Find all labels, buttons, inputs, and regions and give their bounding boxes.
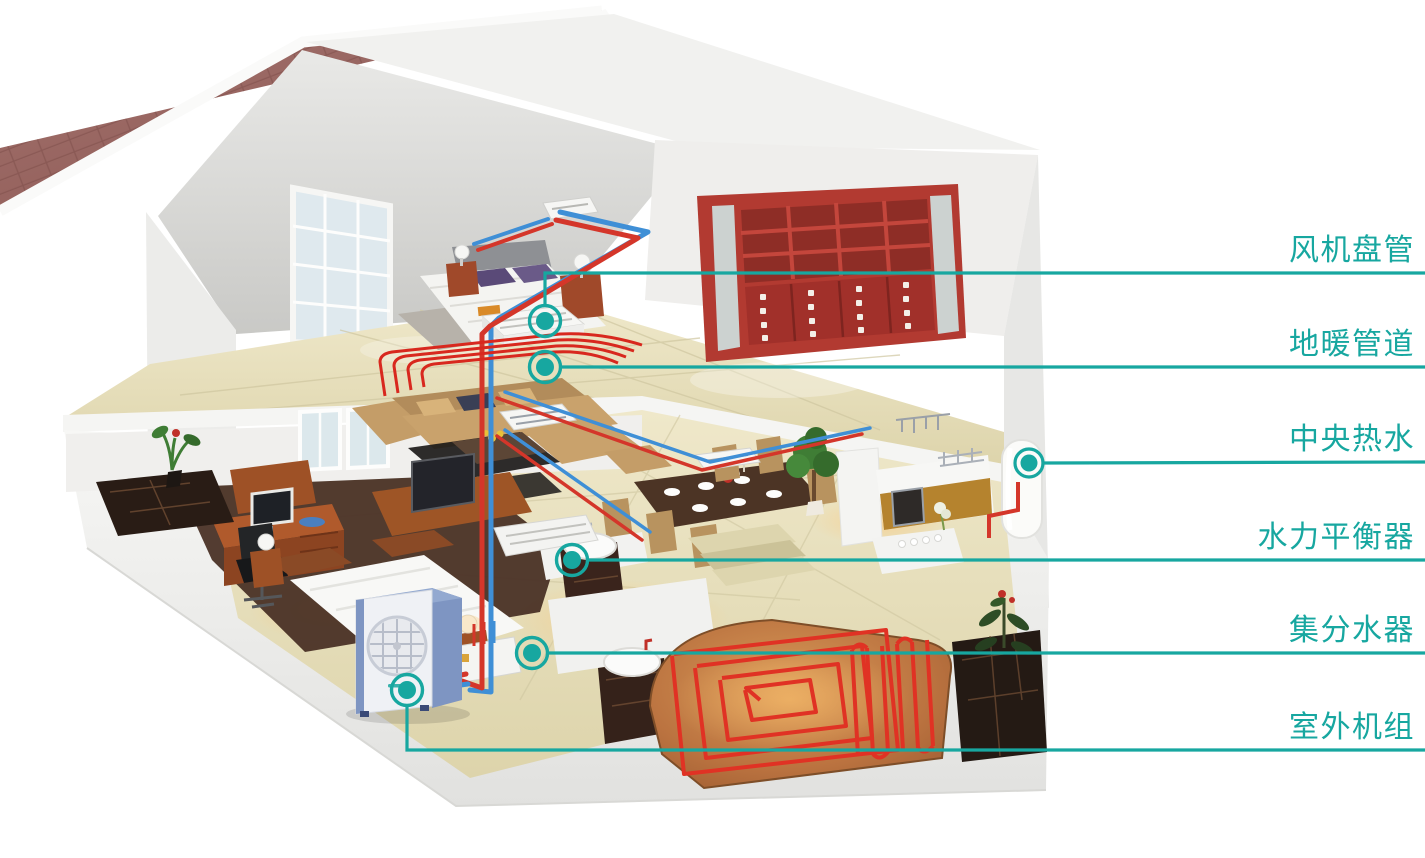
callout-label-fan-coil: 风机盘管 [1015, 234, 1415, 268]
callout-label-hydraulic-balancer: 水力平衡器 [1015, 521, 1415, 555]
callout-label-floor-heating: 地暖管道 [1015, 328, 1415, 362]
callout-label-central-hot-water: 中央热水 [1015, 423, 1415, 457]
floor-heating-spiral [650, 620, 951, 788]
attic-window [293, 188, 390, 348]
callout-line-central-hot-water [1044, 462, 1425, 463]
callout-label-outdoor-unit: 室外机组 [1015, 711, 1415, 745]
mousepad [299, 517, 325, 527]
oven [892, 488, 924, 526]
hvac-house-cutaway-figure: 风机盘管 地暖管道 中央热水 水力平衡器 集分水器 室外机组 [0, 0, 1425, 858]
tv-screen [412, 454, 474, 512]
callout-label-manifold: 集分水器 [1015, 614, 1415, 648]
monitor [252, 489, 292, 526]
